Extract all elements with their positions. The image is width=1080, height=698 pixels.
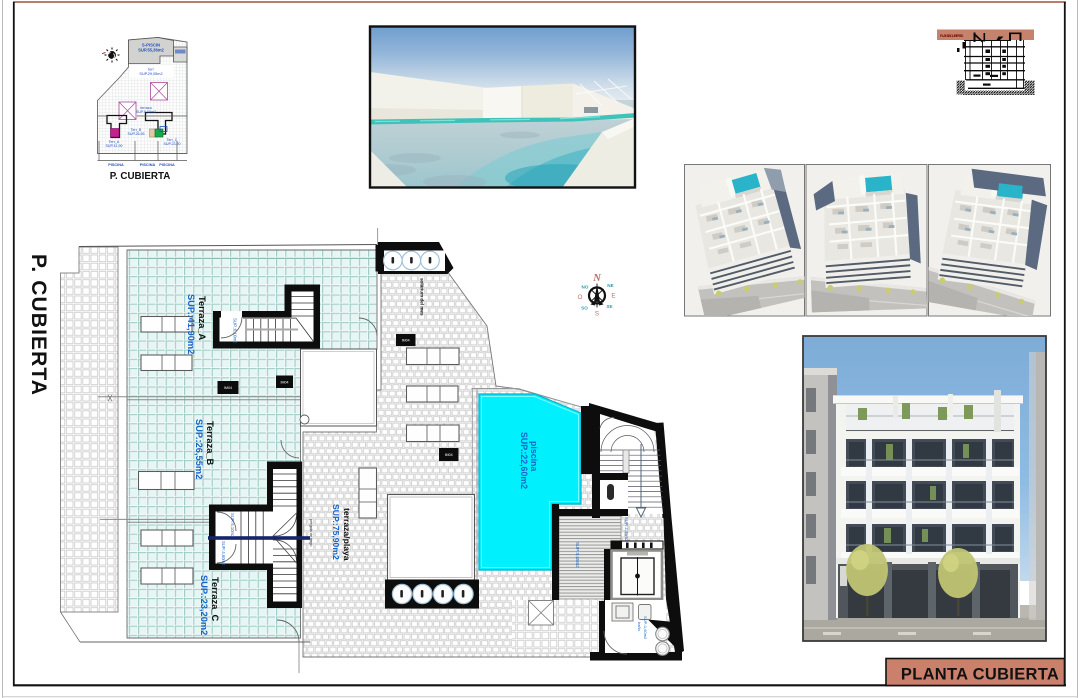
svg-text:E: E — [611, 293, 615, 300]
svg-text:PLANTA CUBIERTA: PLANTA CUBIERTA — [940, 33, 964, 38]
svg-text:SUP.29,05m2: SUP.29,05m2 — [139, 72, 162, 76]
svg-text:SUP.:23,20m2: SUP.:23,20m2 — [199, 575, 209, 635]
svg-text:SUP.:41,90m2: SUP.:41,90m2 — [186, 294, 196, 354]
svg-text:SUP.:22,60m2: SUP.:22,60m2 — [519, 432, 529, 489]
svg-text:SUP.:26,55m2: SUP.:26,55m2 — [194, 419, 204, 479]
svg-text:Terraza_B: Terraza_B — [205, 421, 215, 466]
svg-text:P. CUBIERTA: P. CUBIERTA — [110, 171, 171, 182]
svg-text:SUP.:4,60m2: SUP.:4,60m2 — [221, 541, 226, 566]
svg-text:NO: NO — [582, 285, 589, 290]
svg-text:O: O — [578, 294, 583, 301]
svg-text:PISCINA: PISCINA — [140, 163, 156, 167]
svg-text:PLANTA CUBIERTA: PLANTA CUBIERTA — [901, 666, 1059, 684]
svg-text:SUP.23,20: SUP.23,20 — [164, 142, 181, 146]
svg-text:PISCINA: PISCINA — [108, 163, 124, 167]
svg-text:IM04: IM04 — [445, 453, 453, 457]
svg-text:SUP.:2,35m2: SUP.:2,35m2 — [624, 517, 629, 542]
svg-text:SUP.26,55: SUP.26,55 — [128, 132, 145, 136]
svg-text:piscina: piscina — [529, 441, 539, 471]
svg-text:SE: SE — [606, 304, 612, 309]
svg-text:SUP.:75,90m2: SUP.:75,90m2 — [331, 504, 341, 560]
svg-text:P. CUBIERTA: P. CUBIERTA — [27, 254, 50, 396]
svg-text:IM04: IM04 — [402, 339, 410, 343]
svg-text:Terraza_A: Terraza_A — [197, 296, 207, 341]
svg-text:SUP.:1,60m2: SUP.:1,60m2 — [643, 616, 648, 640]
svg-text:terr: terr — [148, 68, 154, 72]
svg-text:SUP.41,90: SUP.41,90 — [106, 144, 123, 148]
svg-text:SUP.:6,10m2: SUP.:6,10m2 — [233, 318, 238, 344]
svg-text:Terraza_C: Terraza_C — [210, 577, 220, 622]
svg-text:N: N — [592, 273, 601, 284]
svg-text:IM04: IM04 — [224, 386, 232, 390]
svg-text:terraza/playa: terraza/playa — [342, 508, 352, 561]
svg-text:pérgola de riego: pérgola de riego — [309, 519, 313, 546]
svg-text:S: S — [595, 311, 599, 318]
svg-text:PISCINA: PISCINA — [159, 163, 175, 167]
svg-text:SUP.55,36m2: SUP.55,36m2 — [138, 48, 164, 53]
svg-text:baño: baño — [637, 622, 642, 632]
svg-text:SUP.:9,55m2: SUP.:9,55m2 — [575, 542, 580, 568]
svg-text:solárium del mes: solárium del mes — [420, 278, 425, 316]
svg-text:SUP.:6,10m2: SUP.:6,10m2 — [230, 513, 235, 538]
svg-text:SUP.9,00m2: SUP.9,00m2 — [136, 110, 156, 114]
svg-text:SO: SO — [581, 306, 588, 311]
svg-text:IM04: IM04 — [281, 381, 289, 385]
svg-text:NE: NE — [607, 283, 613, 288]
